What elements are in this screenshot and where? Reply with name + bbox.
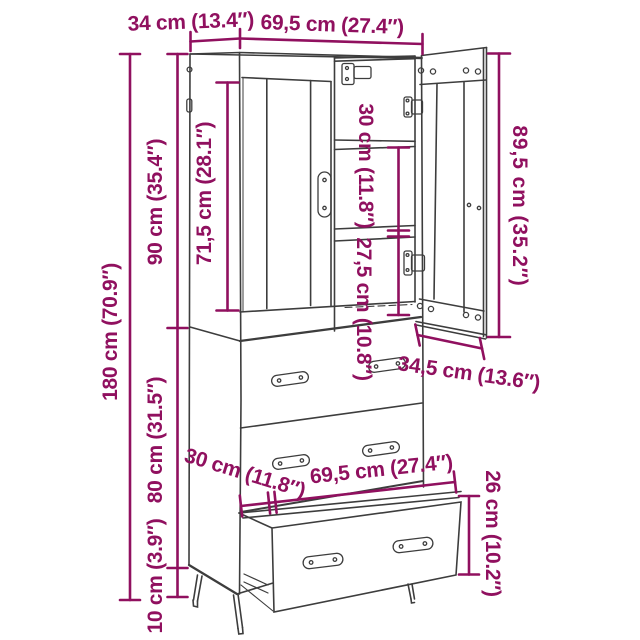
svg-text:89,5 cm (35.2″): 89,5 cm (35.2″) (508, 125, 531, 286)
svg-text:10 cm (3.9″): 10 cm (3.9″) (144, 518, 167, 633)
svg-text:71,5 cm (28.1″): 71,5 cm (28.1″) (193, 122, 216, 265)
svg-text:34 cm (13.4″): 34 cm (13.4″) (127, 8, 254, 35)
svg-text:80 cm (31.5″): 80 cm (31.5″) (144, 377, 167, 503)
svg-text:26 cm (10.2″): 26 cm (10.2″) (481, 470, 504, 596)
svg-text:90 cm (35.4″): 90 cm (35.4″) (144, 139, 167, 265)
svg-text:27,5 cm (10.8″): 27,5 cm (10.8″) (352, 237, 375, 380)
svg-text:30 cm (11.8″): 30 cm (11.8″) (354, 103, 377, 228)
svg-text:180 cm (70.9″): 180 cm (70.9″) (99, 263, 122, 401)
